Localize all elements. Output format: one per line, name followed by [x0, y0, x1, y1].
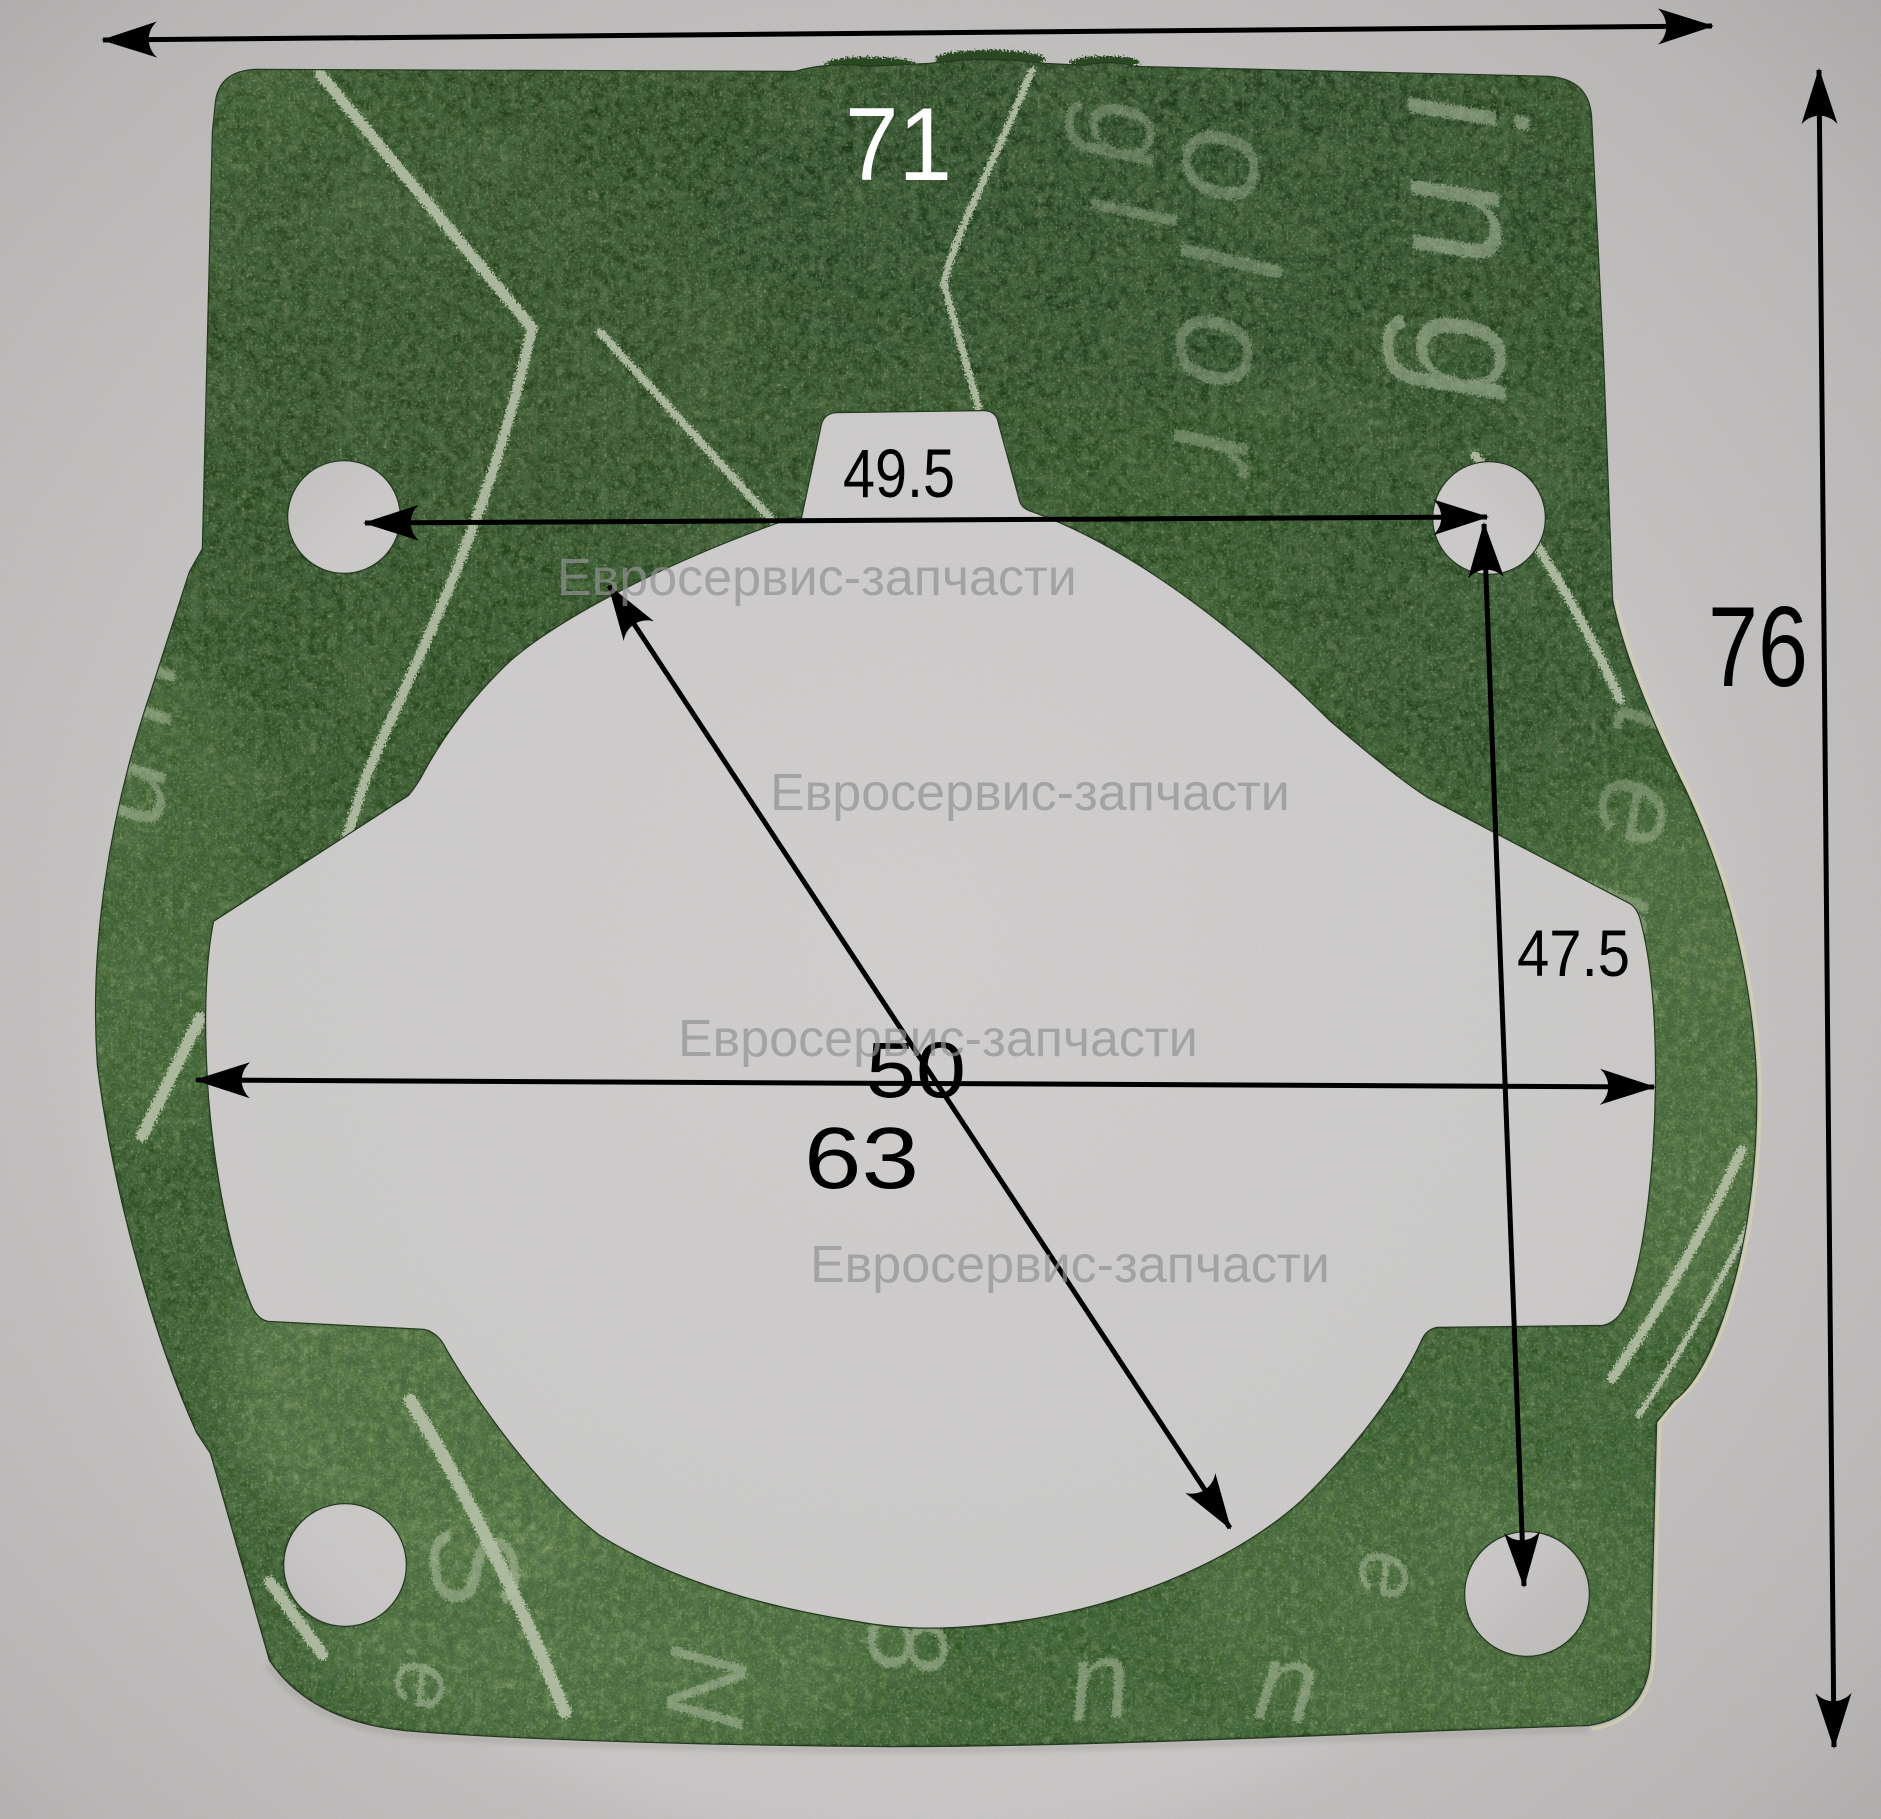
svg-text:Евросервис-запчасти: Евросервис-запчасти — [810, 1236, 1330, 1294]
svg-text:S: S — [401, 1518, 547, 1613]
svg-text:n: n — [1249, 1618, 1324, 1749]
svg-text:47.5: 47.5 — [1517, 916, 1630, 990]
svg-text:63: 63 — [804, 1110, 919, 1207]
svg-text:76: 76 — [1708, 584, 1808, 711]
svg-text:49.5: 49.5 — [843, 435, 955, 512]
svg-text:e: e — [1338, 1546, 1442, 1605]
svg-text:e: e — [374, 1656, 478, 1715]
svg-text:N: N — [641, 1640, 773, 1732]
svg-text:ing: ing — [1373, 90, 1569, 451]
svg-text:71: 71 — [845, 87, 952, 203]
svg-text:Евросервис-запчасти: Евросервис-запчасти — [770, 764, 1290, 822]
svg-text:Евросервис-запчасти: Евросервис-запчасти — [678, 1010, 1198, 1068]
svg-text:n: n — [1061, 1615, 1136, 1746]
svg-text:gl: gl — [1064, 100, 1198, 253]
svg-text:Евросервис-запчасти: Евросервис-запчасти — [557, 549, 1077, 607]
